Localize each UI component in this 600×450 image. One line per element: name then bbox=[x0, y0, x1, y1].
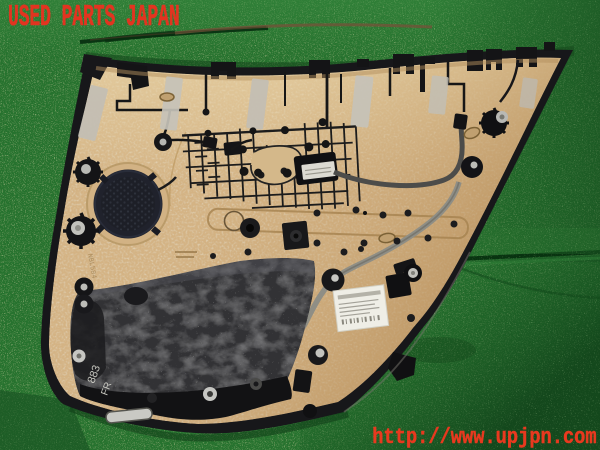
svg-text:USED PARTS JAPAN: USED PARTS JAPAN bbox=[8, 0, 180, 35]
svg-text:http://www.upjpn.com: http://www.upjpn.com bbox=[372, 426, 596, 450]
